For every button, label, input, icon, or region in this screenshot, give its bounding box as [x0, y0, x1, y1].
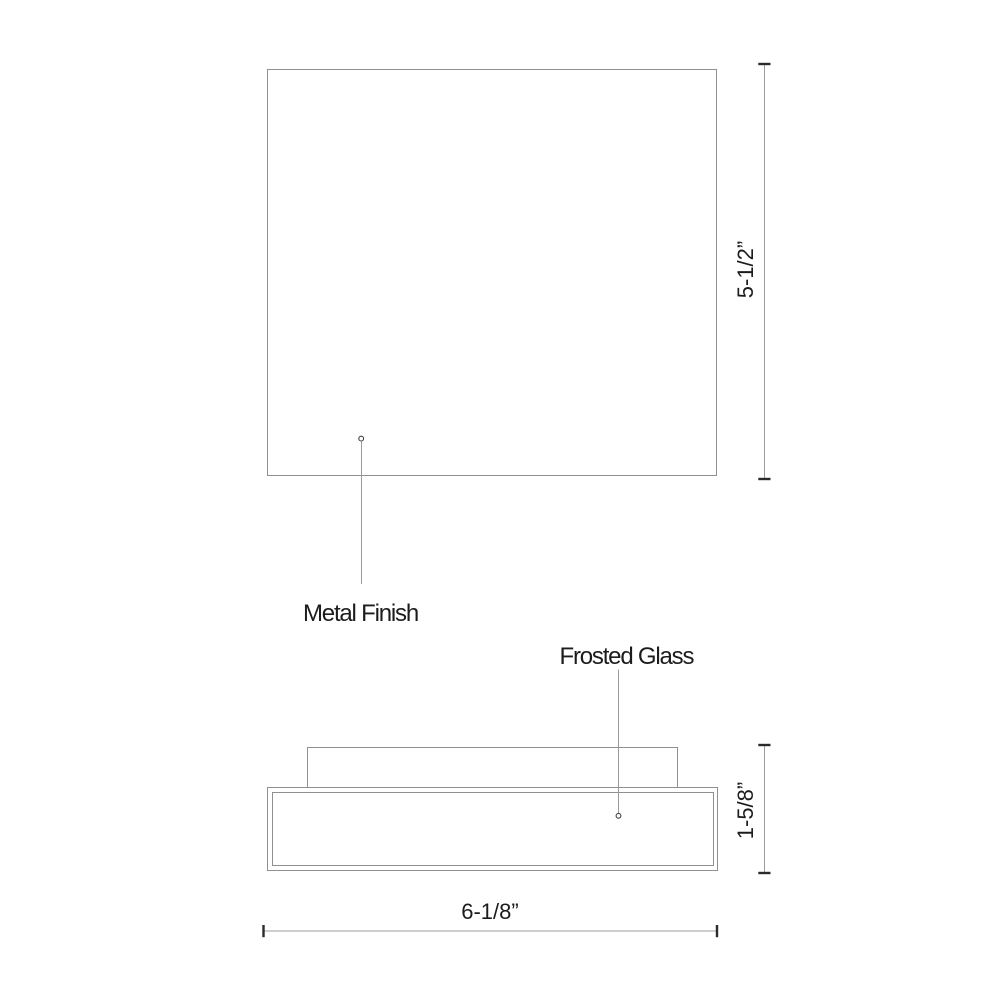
svg-text:Metal Finish: Metal Finish: [303, 600, 418, 627]
svg-text:Frosted Glass: Frosted Glass: [560, 643, 695, 670]
svg-text:1-5/8”: 1-5/8”: [733, 782, 758, 839]
svg-text:5-1/2”: 5-1/2”: [733, 241, 758, 298]
svg-text:6-1/8”: 6-1/8”: [461, 899, 518, 924]
